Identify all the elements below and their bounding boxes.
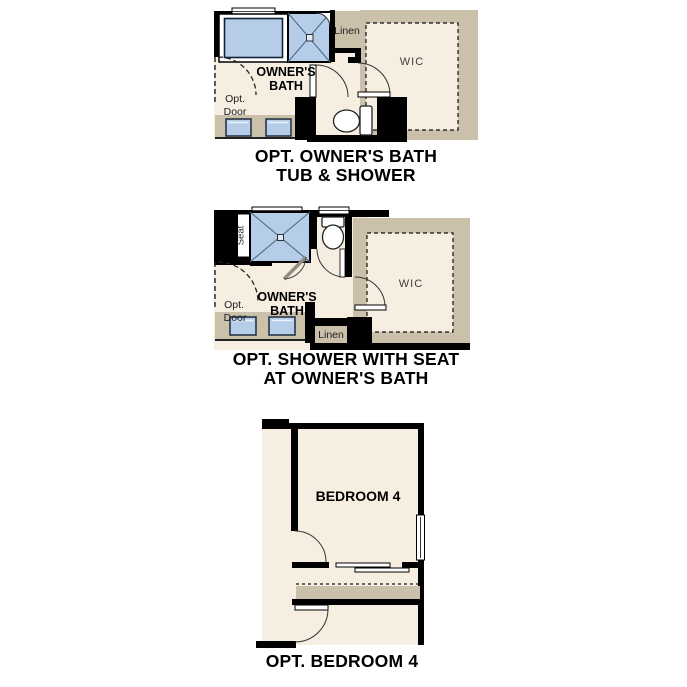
window (319, 207, 349, 214)
figure-owners-bath-tub-shower: OWNER'S BATH WIC Linen Opt. Door (212, 5, 480, 145)
shower (288, 13, 330, 62)
sink (266, 119, 291, 136)
wic-label: WIC (400, 56, 424, 68)
bathtub (219, 14, 288, 62)
figure-opt-bedroom-4: BEDROOM 4 (252, 413, 432, 651)
bedroom-floor (262, 423, 424, 645)
caption-line-2: TUB & SHOWER (212, 166, 480, 185)
sink (269, 317, 295, 335)
caption-line-1: OPT. OWNER'S BATH (212, 147, 480, 166)
sink (226, 119, 251, 136)
shower (250, 212, 310, 262)
bedroom4-plan-drawing: BEDROOM 4 (252, 413, 432, 651)
caption-line-1: OPT. BEDROOM 4 (252, 652, 432, 671)
opt-door-label-line1: Opt. (224, 299, 244, 311)
shower-drain (278, 235, 284, 241)
opt-door-label-line1: Opt. (225, 93, 245, 105)
caption-line-1: OPT. SHOWER WITH SEAT (212, 350, 480, 369)
opt-door-label-line2: Door (224, 106, 247, 118)
owners-bath-tub-shower-plan-drawing: OWNER'S BATH WIC Linen Opt. Door (212, 5, 480, 145)
opt-door-label-line2: Door (224, 312, 247, 324)
toilet (322, 217, 344, 249)
caption-opt-bedroom-4: OPT. BEDROOM 4 (252, 652, 432, 671)
linen-label: Linen (334, 25, 360, 37)
owners-bath-label-line2: BATH (269, 79, 303, 93)
closet-shelf (296, 584, 420, 599)
shower-with-seat-plan-drawing: Seat OWNER'S BATH WIC Linen Opt. Door (212, 205, 480, 353)
caption-shower-with-seat: OPT. SHOWER WITH SEAT AT OWNER'S BATH (212, 350, 480, 387)
linen-label: Linen (318, 329, 344, 341)
shower-drain (307, 35, 314, 42)
wic-label: WIC (399, 278, 423, 290)
caption-line-2: AT OWNER'S BATH (212, 369, 480, 388)
seat-label: Seat (236, 225, 247, 245)
floorplan-options-page: { "page": {"width": 687, "height": 687, … (0, 0, 687, 687)
window (417, 515, 425, 560)
figure-shower-with-seat: Seat OWNER'S BATH WIC Linen Opt. Door (212, 205, 480, 353)
owners-bath-label-line1: OWNER'S (256, 65, 315, 79)
bedroom4-label: BEDROOM 4 (316, 488, 401, 504)
owners-bath-label-line2: BATH (270, 304, 304, 318)
caption-owners-bath-tub-shower: OPT. OWNER'S BATH TUB & SHOWER (212, 147, 480, 184)
owners-bath-label-line1: OWNER'S (257, 290, 316, 304)
